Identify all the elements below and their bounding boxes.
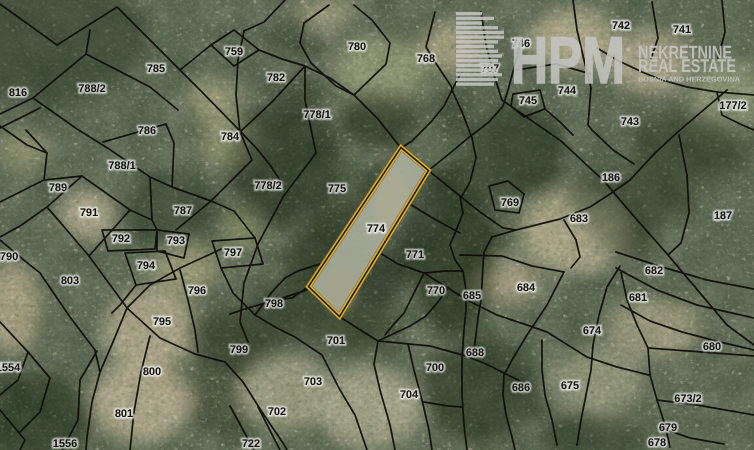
svg-text:REAL ESTATE: REAL ESTATE (638, 55, 736, 76)
svg-text:BOSNIA AND HERZEGOVINA: BOSNIA AND HERZEGOVINA (638, 77, 740, 84)
svg-text:HPM: HPM (511, 23, 625, 97)
